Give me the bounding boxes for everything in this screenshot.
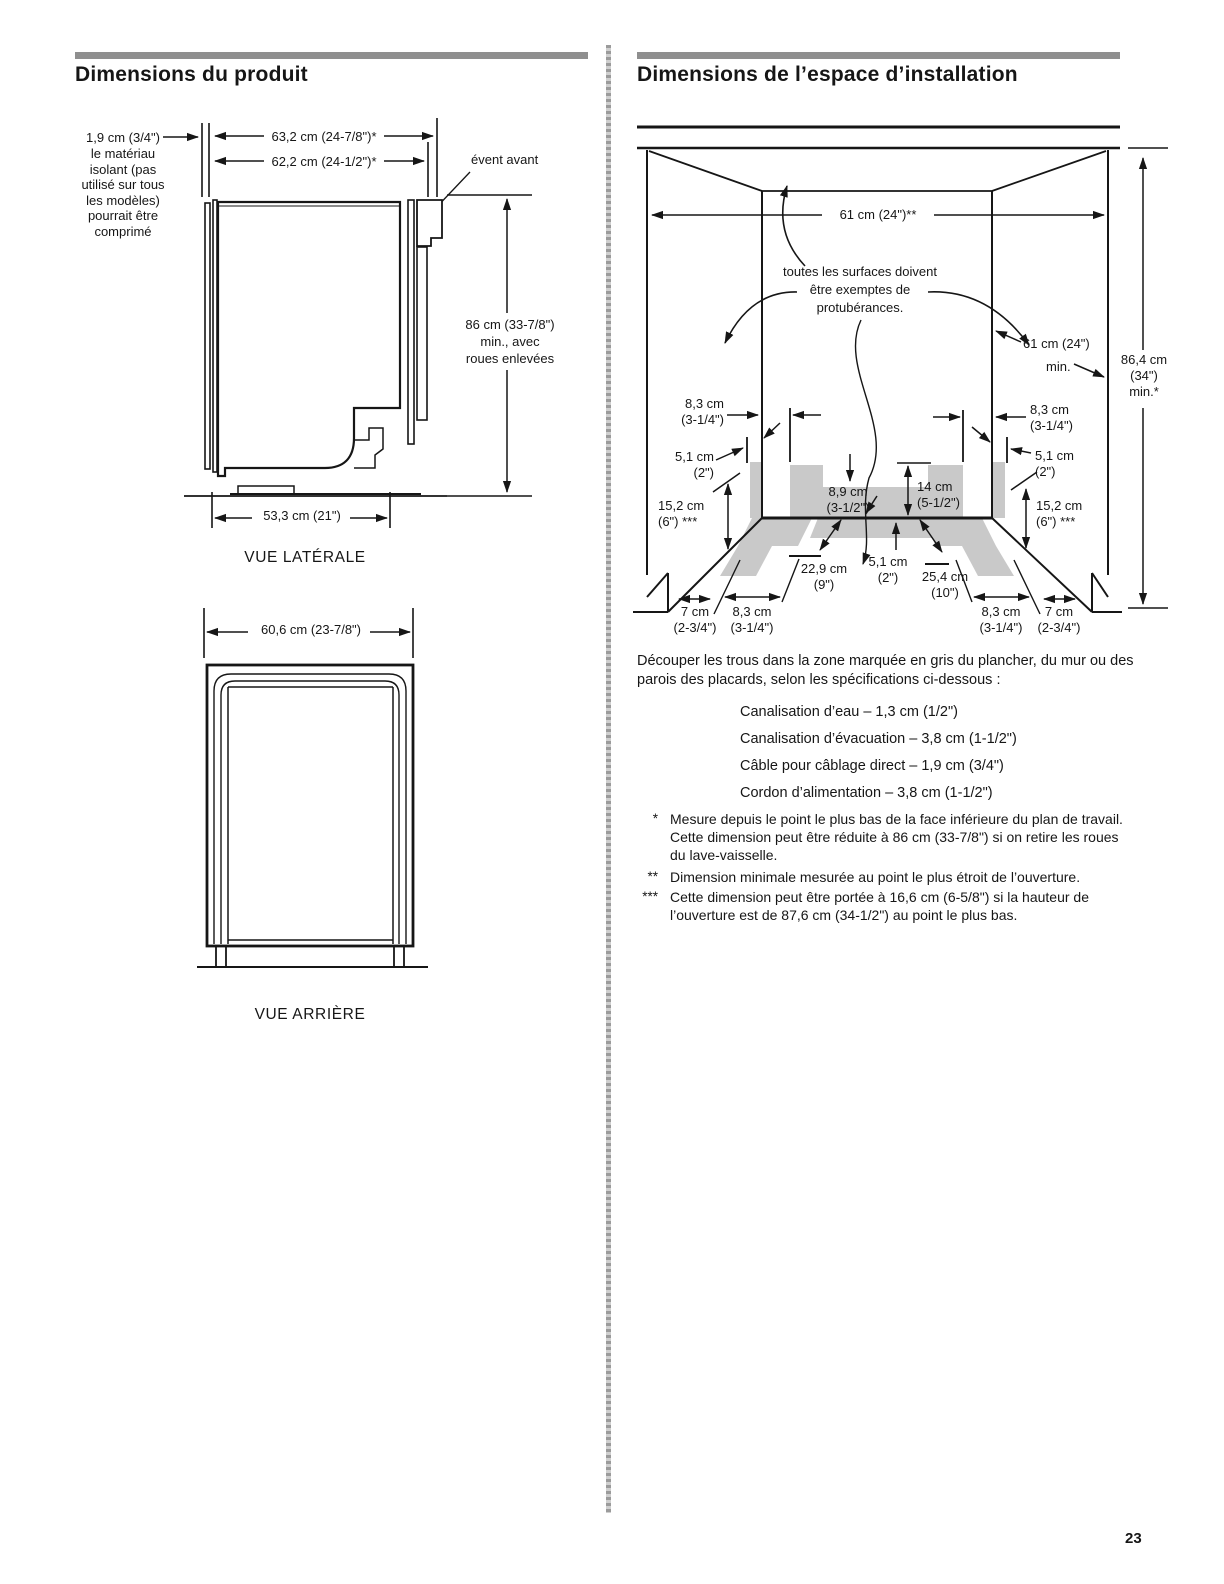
footnote-text: Dimension minimale mesurée au point le p… (670, 868, 1080, 886)
footnote-list: * Mesure depuis le point le plus bas de … (628, 810, 1128, 924)
bottom-right-dim1-label: 8,3 cm (3-1/4") (968, 604, 1034, 635)
spec-drain-line: Canalisation d’évacuation – 3,8 cm (1-1/… (740, 730, 1017, 749)
right-lower-dim-label: 15,2 cm (6") *** (1036, 498, 1120, 529)
rear-view-caption: VUE ARRIÈRE (235, 1006, 385, 1024)
right-upper-dim-label: 8,3 cm (3-1/4") (1030, 402, 1116, 433)
width-outer-label: 63,2 cm (24-7/8")* (264, 129, 384, 145)
column-divider (606, 45, 611, 1513)
installation-drawing (633, 127, 1168, 614)
front-vent-label: évent avant (471, 152, 566, 168)
footnote-marker: ** (628, 868, 670, 886)
center-right-dim-label: 14 cm (5-1/2") (917, 479, 987, 510)
surfaces-note-label: toutes les surfaces doivent être exempte… (770, 263, 950, 317)
width-inner-label: 62,2 cm (24-1/2")* (264, 154, 384, 170)
footnote-marker: *** (628, 888, 670, 924)
side-view-caption: VUE LATÉRALE (230, 549, 380, 567)
depth-min-label: min. (1046, 359, 1086, 375)
opening-height-label: 86,4 cm (34") min.* (1105, 352, 1183, 400)
cutout-spec-list: Canalisation d’eau – 1,3 cm (1/2") Canal… (740, 703, 1017, 811)
right-heading-rule (637, 52, 1120, 59)
footnote-marker: * (628, 810, 670, 864)
rear-view-drawing (197, 608, 428, 967)
insulation-dim-label: 1,9 cm (3/4") (58, 130, 160, 146)
left-upper-dim-label: 8,3 cm (3-1/4") (638, 396, 724, 427)
depth-value-label: 61 cm (24") (1023, 336, 1107, 352)
left-mid-dim-label: 5,1 cm (2") (630, 449, 714, 480)
bottom-left-dim2-label: 8,3 cm (3-1/4") (719, 604, 785, 635)
floor-left-dim-label: 22,9 cm (9") (788, 561, 860, 592)
spec-water-line: Canalisation d’eau – 1,3 cm (1/2") (740, 703, 1017, 722)
left-lower-dim-label: 15,2 cm (6") *** (658, 498, 742, 529)
bottom-right-dim2-label: 7 cm (2-3/4") (1026, 604, 1092, 635)
page-number: 23 (1125, 1530, 1142, 1547)
spec-power-cord: Cordon d’alimentation – 3,8 cm (1-1/2") (740, 784, 1017, 803)
rear-width-label: 60,6 cm (23-7/8") (252, 622, 370, 638)
floor-right-dim-label: 25,4 cm (10") (906, 569, 984, 600)
center-upper-dim-label: 8,9 cm (3-1/2") (810, 484, 886, 515)
footnote-text: Mesure depuis le point le plus bas de la… (670, 810, 1123, 864)
footnote-row: *** Cette dimension peut être portée à 1… (628, 888, 1128, 924)
spec-direct-wire: Câble pour câblage direct – 1,9 cm (3/4"… (740, 757, 1017, 776)
depth-dim-label: 53,3 cm (21") (255, 508, 349, 524)
left-heading-rule (75, 52, 588, 59)
insulation-note-label: le matériau isolant (pas utilisé sur tou… (64, 146, 182, 239)
footnote-row: ** Dimension minimale mesurée au point l… (628, 868, 1128, 886)
footnote-text: Cette dimension peut être portée à 16,6 … (670, 888, 1089, 924)
diagram-line-art (0, 0, 1224, 1584)
cutout-intro: Découper les trous dans la zone marquée … (637, 652, 1142, 690)
right-column-heading: Dimensions de l’espace d’installation (637, 63, 1018, 87)
footnote-row: * Mesure depuis le point le plus bas de … (628, 810, 1128, 864)
manual-page: Dimensions du produit Dimensions de l’es… (0, 0, 1224, 1584)
left-column-heading: Dimensions du produit (75, 63, 308, 87)
opening-width-label: 61 cm (24")** (822, 207, 934, 223)
height-dim-label: 86 cm (33-7/8") min., avec roues enlevée… (452, 316, 568, 367)
right-mid-dim-label: 5,1 cm (2") (1035, 448, 1115, 479)
